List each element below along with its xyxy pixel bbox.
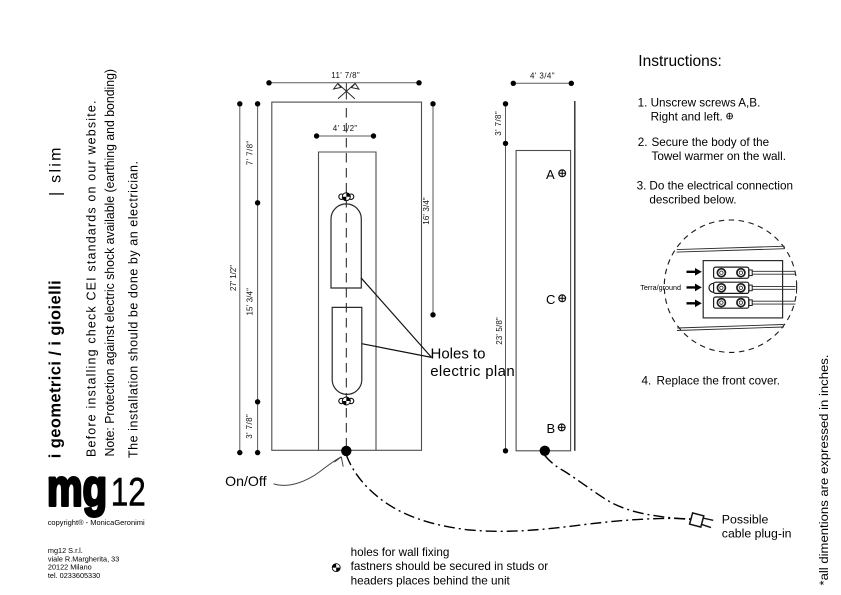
svg-text:headers places behind the unit: headers places behind the unit [351,575,511,588]
svg-text:Terra/ground: Terra/ground [640,283,681,292]
svg-text:4' 1/2": 4' 1/2" [333,124,358,133]
svg-text:A: A [546,167,555,182]
svg-text:B: B [547,421,556,436]
svg-text:Instructions:: Instructions: [638,53,722,70]
svg-text:copyright® - MonicaGeronimi: copyright® - MonicaGeronimi [48,518,145,527]
svg-text:Holes to: Holes to [431,346,486,363]
svg-text:fastners should be secured in: fastners should be secured in studs or [351,560,549,573]
svg-text:4.: 4. [642,375,652,388]
svg-text:Secure the body of the: Secure the body of the [652,136,770,149]
svg-text:Do the electrical connection: Do the electrical connection [649,179,793,192]
svg-text:C: C [546,292,555,307]
svg-text:described below.: described below. [649,193,736,206]
svg-text:3' 7/8": 3' 7/8" [494,111,503,136]
svg-text:holes for wall fixing: holes for wall fixing [351,546,450,559]
svg-text:2.: 2. [638,136,648,149]
svg-text:The installation should be don: The installation should be done by an el… [127,161,141,458]
svg-text:electric plan: electric plan [430,363,515,380]
svg-text:12: 12 [111,471,146,515]
svg-text:23' 5/8": 23' 5/8" [495,317,504,345]
svg-text:Possible: Possible [722,513,769,527]
svg-text:Before installing check CEI st: Before installing check CEI standards on… [85,101,99,458]
svg-text:cable plug-in: cable plug-in [722,527,792,541]
svg-text:16' 3/4": 16' 3/4" [422,197,431,225]
svg-text:Note: Protection against elect: Note: Protection against electric shock … [103,69,117,457]
svg-text:tel. 0233605330: tel. 0233605330 [48,571,100,580]
svg-text:15' 3/4": 15' 3/4" [245,288,254,316]
svg-text:Towel warmer on the wall.: Towel warmer on the wall. [652,150,786,163]
svg-text:mg: mg [47,458,107,516]
svg-text:| slim: | slim [48,148,65,197]
svg-text:i geometrici / i gioielli: i geometrici / i gioielli [47,280,65,458]
svg-text:1.: 1. [638,97,648,110]
svg-text:*all dimentions are expressed: *all dimentions are expressed in inches. [817,355,831,586]
svg-text:Right and left.: Right and left. [651,110,723,123]
svg-text:27' 1/2": 27' 1/2" [229,265,238,291]
svg-text:7' 7/8": 7' 7/8" [245,141,254,166]
svg-text:11' 7/8": 11' 7/8" [331,71,360,80]
svg-text:3' 7/8": 3' 7/8" [245,414,254,439]
svg-text:Unscrew screws A,B.: Unscrew screws A,B. [651,97,761,110]
svg-text:3.: 3. [637,179,647,192]
svg-text:Replace the front cover.: Replace the front cover. [657,375,780,388]
svg-text:On/Off: On/Off [225,473,266,489]
svg-text:4' 3/4": 4' 3/4" [530,72,555,81]
